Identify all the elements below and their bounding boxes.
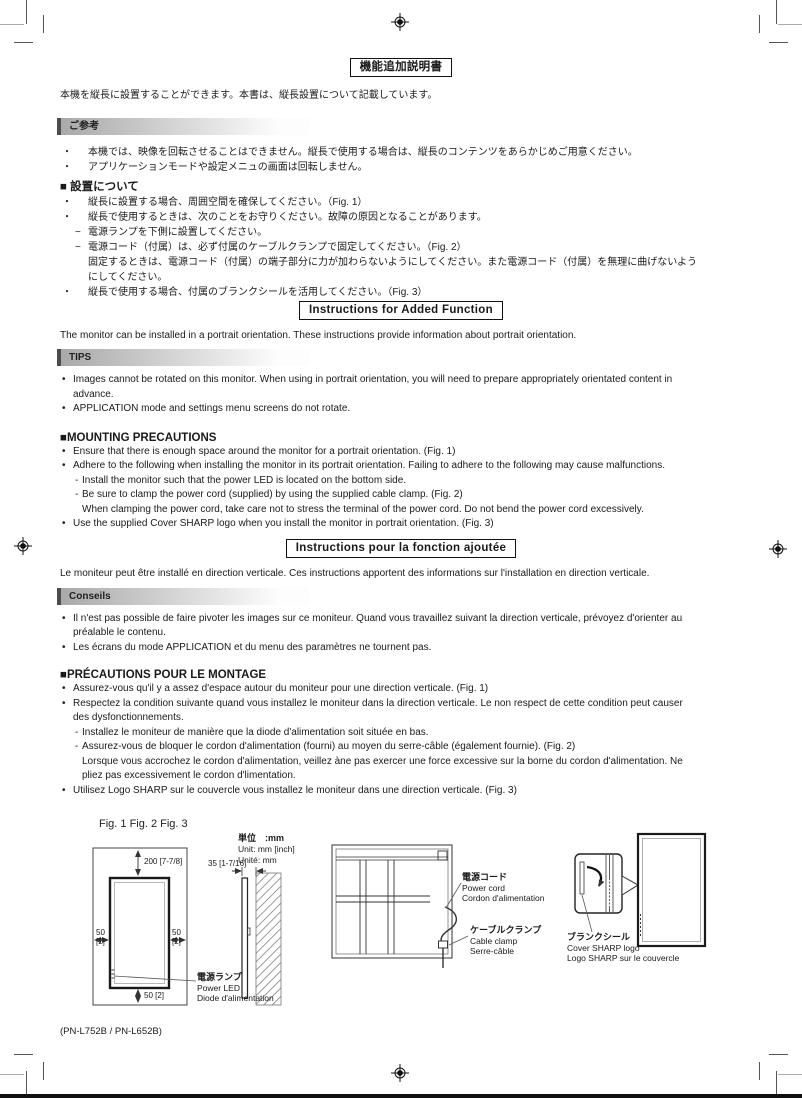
list-item: −電源コード（付属）は、必ず付属のケーブルクランプで固定してください。（Fig.… <box>60 240 750 255</box>
en-notes: •Images cannot be rotated on this monito… <box>60 373 750 417</box>
crop-mark <box>778 1074 802 1075</box>
fr-notes: •Il n'est pas possible de faire pivoter … <box>60 612 750 656</box>
list-item: -Install the monitor such that the power… <box>60 474 750 489</box>
en-section-title-wrap: Instructions for Added Function <box>0 300 802 320</box>
dimension-right: 50 [2] <box>172 928 181 946</box>
en-intro: The monitor can be installed in a portra… <box>60 328 750 343</box>
fig3-cover-logo <box>575 834 705 946</box>
list-item: ・縦長に設置する場合、周囲空間を確保してください。（Fig. 1） <box>60 195 750 210</box>
list-item: 固定するときは、電源コード（付属）の端子部分に力が加わらないようにしてください。… <box>60 255 750 270</box>
fr-section-title: Instructions pour la fonction ajoutée <box>286 539 516 558</box>
jp-mounting-heading: ■ 設置について <box>60 180 750 194</box>
crop-mark <box>26 1071 27 1095</box>
dimension-bottom: 50 [2] <box>144 991 164 1000</box>
figures-area: Fig. 1 Fig. 2 Fig. 3 単位 :mm Unit: mm [in… <box>0 810 802 1050</box>
crop-mark <box>14 1054 33 1055</box>
list-item: ・縦長で使用するときは、次のことをお守りください。故障の原因となることがあります… <box>60 210 750 225</box>
list-item: -Installez le moniteur de manière que la… <box>60 726 750 741</box>
crop-mark <box>43 1062 44 1080</box>
fr-note-header: Conseils <box>57 588 309 605</box>
cable-clamp-label: ケーブルクランプ Cable clamp Serre-câble <box>470 925 541 957</box>
list-item: préalable le contenu. <box>60 626 750 641</box>
fr-section-title-wrap: Instructions pour la fonction ajoutée <box>0 538 802 558</box>
list-item: pliez pas excessivement le cordon d'lime… <box>60 769 750 784</box>
model-numbers: (PN-L752B / PN-L652B) <box>60 1026 162 1037</box>
list-item: •Respectez la condition suivante quand v… <box>60 697 750 712</box>
list-item: -Assurez-vous de bloquer le cordon d'ali… <box>60 740 750 755</box>
jp-note-header: ご参考 <box>57 118 309 135</box>
list-item: にしてください。 <box>60 270 750 285</box>
manual-page: 機能追加説明書 本機を縦長に設置することができます。本書は、縦長設置について記載… <box>0 0 802 1098</box>
fr-mounting-heading: ■PRÉCAUTIONS POUR LE MONTAGE <box>60 668 750 682</box>
jp-intro: 本機を縦長に設置することができます。本書は、縦長設置について記載しています。 <box>60 88 750 103</box>
list-item: •Ensure that there is enough space aroun… <box>60 445 750 460</box>
power-cord-label: 電源コード Power cord Cordon d'alimentation <box>462 872 544 904</box>
jp-notes: ・本機では、映像を回転させることはできません。縦長で使用する場合は、縦長のコンテ… <box>60 145 750 175</box>
crop-mark <box>778 24 802 25</box>
fig1-front-view <box>93 848 196 1005</box>
list-item: des dysfonctionnements. <box>60 711 750 726</box>
crop-mark <box>759 15 760 33</box>
dimension-left: 50 [2] <box>96 928 105 946</box>
crop-mark <box>0 24 24 25</box>
list-item: -Be sure to clamp the power cord (suppli… <box>60 488 750 503</box>
units-note: 単位 :mm Unit: mm [inch] Unité: mm <box>238 833 295 866</box>
list-item: advance. <box>60 388 750 403</box>
en-note-header: TIPS <box>57 349 309 366</box>
list-item: ・アプリケーションモードや設定メニュの画面は回転しません。 <box>60 160 750 175</box>
crop-mark <box>769 42 788 43</box>
dimension-top: 200 [7-7/8] <box>144 857 182 866</box>
list-item: •Use the supplied Cover SHARP logo when … <box>60 517 750 532</box>
dimension-depth: 35 [1-7/16] <box>208 859 246 868</box>
list-item: ・本機では、映像を回転させることはできません。縦長で使用する場合は、縦長のコンテ… <box>60 145 750 160</box>
fr-mounting-items: •Assurez-vous qu'il y a assez d'espace a… <box>60 682 750 798</box>
list-item: •Utilisez Logo SHARP sur le couvercle vo… <box>60 784 750 799</box>
list-item: •Les écrans du mode APPLICATION et du me… <box>60 641 750 656</box>
crop-mark <box>26 0 27 24</box>
list-item: Lorsque vous accrochez le cordon d'alime… <box>60 755 750 770</box>
en-mounting-heading: ■MOUNTING PRECAUTIONS <box>60 431 750 445</box>
list-item: •Il n'est pas possible de faire pivoter … <box>60 612 750 627</box>
figures-heading: Fig. 1 Fig. 2 Fig. 3 <box>99 818 188 830</box>
crop-mark <box>769 1054 788 1055</box>
jp-section-title-wrap: 機能追加説明書 <box>0 57 802 77</box>
list-item: −電源ランプを下側に設置してください。 <box>60 225 750 240</box>
list-item: •Assurez-vous qu'il y a assez d'espace a… <box>60 682 750 697</box>
crop-mark <box>14 42 33 43</box>
power-led-label: 電源ランプ Power LED Diode d'alimentation <box>197 972 274 1004</box>
fig2-rear-view <box>332 845 468 968</box>
list-item: When clamping the power cord, take care … <box>60 503 750 518</box>
cover-logo-label: ブランクシール Cover SHARP logo Logo SHARP sur … <box>567 932 679 964</box>
en-mounting-items: •Ensure that there is enough space aroun… <box>60 445 750 532</box>
crop-mark <box>759 1062 760 1080</box>
jp-mounting-items: ・縦長に設置する場合、周囲空間を確保してください。（Fig. 1） ・縦長で使用… <box>60 195 750 300</box>
list-item: •Adhere to the following when installing… <box>60 459 750 474</box>
figure-line-art <box>0 810 802 1050</box>
en-section-title: Instructions for Added Function <box>299 301 503 320</box>
list-item: ・縦長で使用する場合、付属のブランクシールを活用してください。（Fig. 3） <box>60 285 750 300</box>
list-item: •Images cannot be rotated on this monito… <box>60 373 750 388</box>
list-item: •APPLICATION mode and settings menu scre… <box>60 402 750 417</box>
jp-section-title: 機能追加説明書 <box>350 58 453 77</box>
page-bottom-bar <box>0 1094 802 1098</box>
fr-intro: Le moniteur peut être installé en direct… <box>60 566 750 581</box>
crop-mark <box>0 1074 24 1075</box>
crop-mark <box>776 1071 777 1095</box>
crop-mark <box>43 15 44 33</box>
crop-mark <box>776 0 777 24</box>
registration-mark-icon <box>391 1064 409 1082</box>
text-column: 機能追加説明書 本機を縦長に設置することができます。本書は、縦長設置について記載… <box>60 0 750 798</box>
